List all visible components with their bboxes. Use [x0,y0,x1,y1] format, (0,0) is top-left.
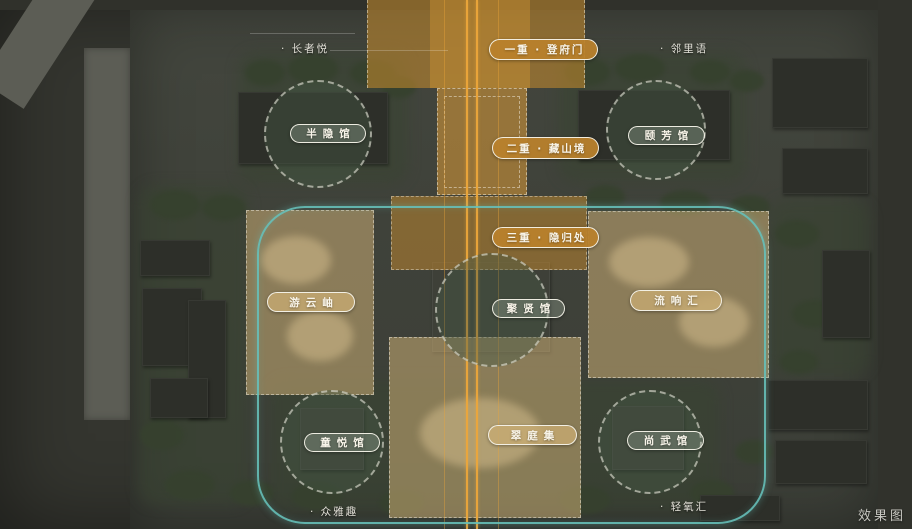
poi-label-qingyanghui: · 轻氧汇 [660,499,708,514]
tree [245,60,285,86]
axis-level-3-label: 三重 · 隐归处 [492,227,599,248]
leader-line [250,33,355,34]
building-block [768,380,868,430]
poi-label-changzheyue: · 长者悦 [281,41,329,56]
tree [780,350,818,374]
axis-level-2-label: 二重 · 藏山境 [492,137,599,159]
tree [730,70,764,92]
tree [165,470,215,500]
building-block [775,440,867,484]
tree [775,220,819,248]
tree [202,195,246,221]
venue-label-juxian: 聚贤馆 [492,299,565,318]
right-road-margin [878,0,912,529]
building-block [150,378,208,418]
garden-label-cuitingji: 翠庭集 [488,425,577,445]
garden-label-liuxianghui: 流响汇 [630,290,722,311]
tree [615,54,665,82]
site-plan-rendering: 一重 · 登府门 二重 · 藏山境 三重 · 隐归处 半隐馆 颐芳馆 聚贤馆 童… [0,0,912,529]
venue-label-tongyue: 童悦馆 [304,433,380,452]
rendering-watermark: 效果图 [858,505,906,524]
tree [140,420,184,450]
tree [690,60,730,84]
poi-label-zhongyaqu: · 众雅趣 [310,504,358,519]
building-block [782,148,868,194]
building-block [140,240,210,276]
building-block [772,58,868,128]
poi-label-linliyu: · 邻里语 [660,41,708,56]
building-block [822,250,870,338]
garden-label-youyunxiu: 游云岫 [267,292,355,312]
venue-label-banyin: 半隐馆 [290,124,366,143]
tree [150,190,200,220]
venue-label-yifang: 颐芳馆 [628,126,705,145]
venue-label-shangwu: 尚武馆 [627,431,704,450]
leader-line [330,50,448,51]
axis-level-1-label: 一重 · 登府门 [489,39,598,60]
left-road [84,48,130,420]
